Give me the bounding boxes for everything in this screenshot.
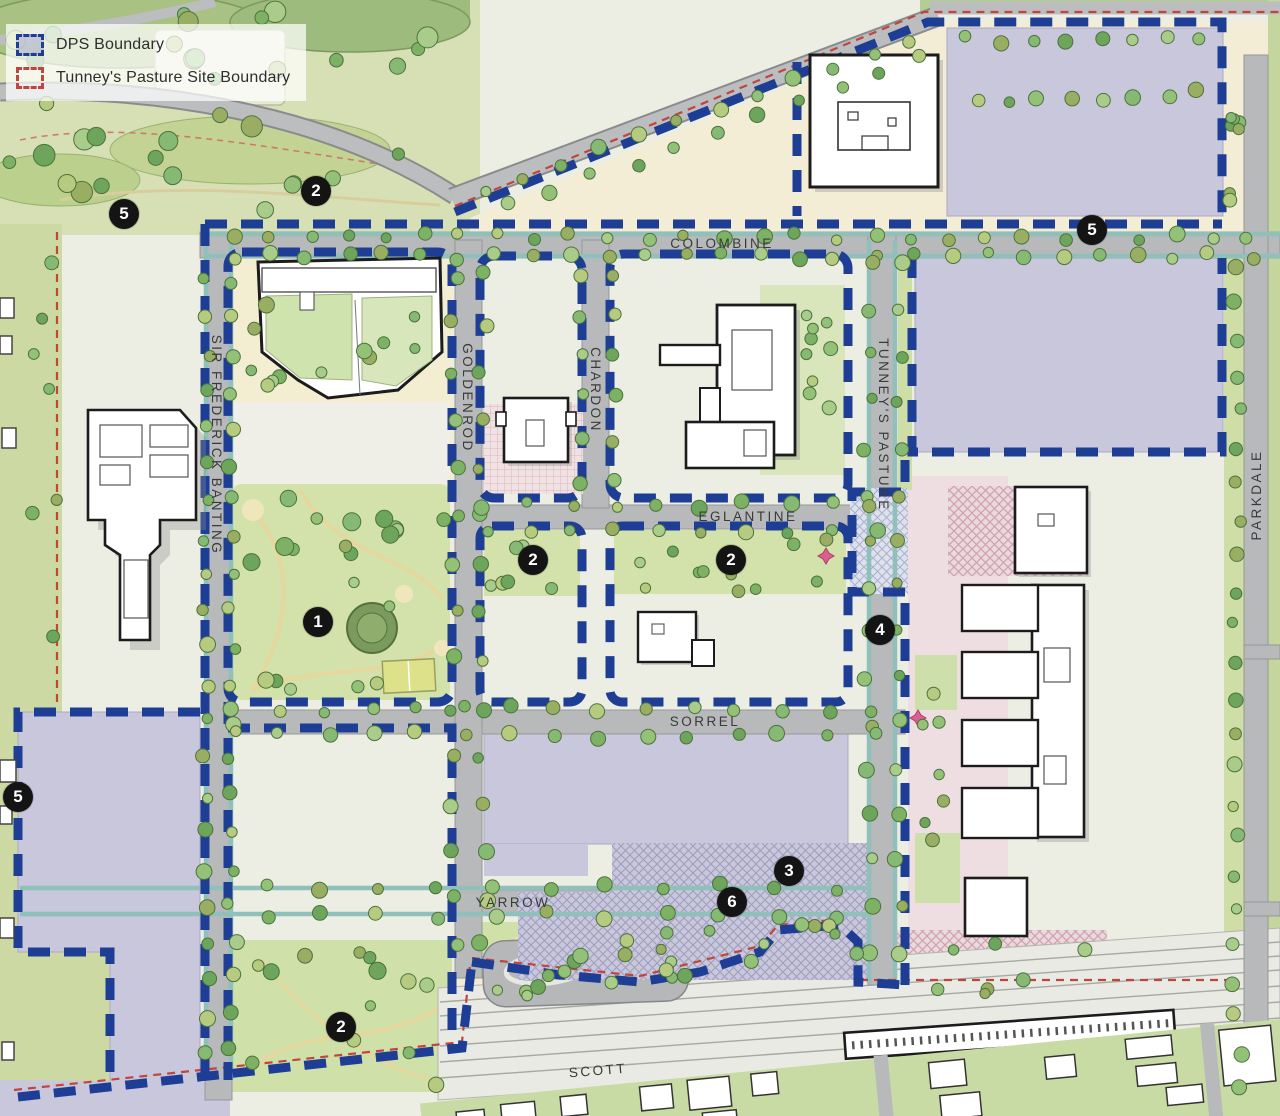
site-boundary-swatch-icon: [16, 67, 44, 89]
street-label-sorrel: SORREL: [670, 714, 741, 729]
marker-5: 5: [3, 782, 33, 812]
legend-label: DPS Boundary: [56, 36, 164, 54]
street-label-eglantine: EGLANTINE: [698, 509, 797, 524]
legend-item-dps-boundary: DPS Boundary: [16, 34, 290, 56]
marker-2: 2: [301, 176, 331, 206]
marker-3: 3: [774, 856, 804, 886]
street-label-chardon: CHARDON: [588, 347, 603, 433]
street-label-goldenrod: GOLDENROD: [460, 343, 475, 453]
marker-4: 4: [865, 615, 895, 645]
marker-5: 5: [1077, 215, 1107, 245]
map-canvas: COLOMBINE EGLANTINE SORREL YARROW SCOTT …: [0, 0, 1280, 1116]
marker-2: 2: [326, 1012, 356, 1042]
marker-5: 5: [109, 199, 139, 229]
marker-1: 1: [303, 607, 333, 637]
street-label-tunneys-pasture: TUNNEY'S PASTURE: [876, 338, 891, 512]
legend: DPS Boundary Tunney's Pasture Site Bound…: [6, 24, 306, 101]
street-label-sir-frederick-banting: SIR FREDERICK BANTING: [209, 335, 224, 556]
marker-6: 6: [717, 887, 747, 917]
marker-2: 2: [518, 545, 548, 575]
legend-label: Tunney's Pasture Site Boundary: [56, 69, 290, 87]
street-label-colombine: COLOMBINE: [670, 236, 774, 251]
site-plan-map: COLOMBINE EGLANTINE SORREL YARROW SCOTT …: [0, 0, 1280, 1116]
street-label-parkdale: PARKDALE: [1249, 449, 1264, 540]
street-label-yarrow: YARROW: [476, 895, 551, 910]
dps-boundary-swatch-icon: [16, 34, 44, 56]
legend-item-site-boundary: Tunney's Pasture Site Boundary: [16, 67, 290, 89]
marker-2: 2: [716, 545, 746, 575]
